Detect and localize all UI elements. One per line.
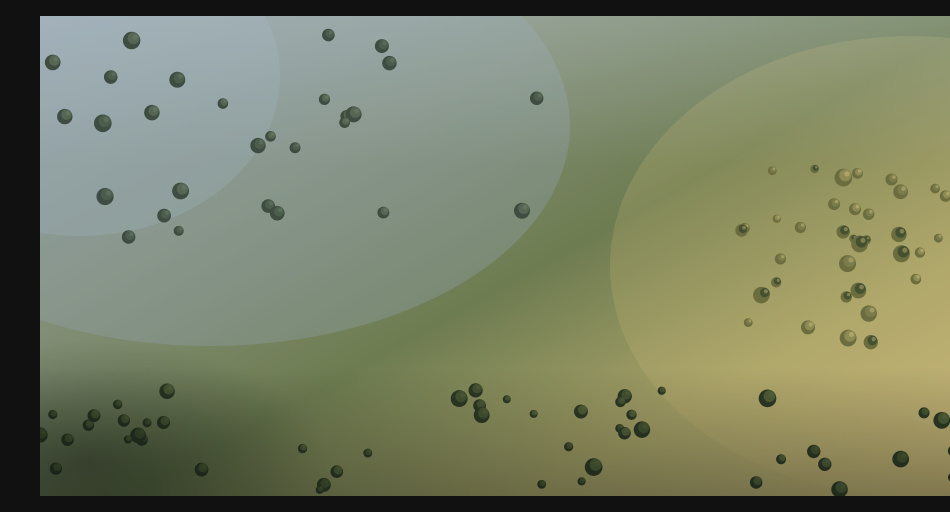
rendering-canvas: [40, 16, 950, 496]
aerial-development-rendering: [40, 16, 950, 496]
